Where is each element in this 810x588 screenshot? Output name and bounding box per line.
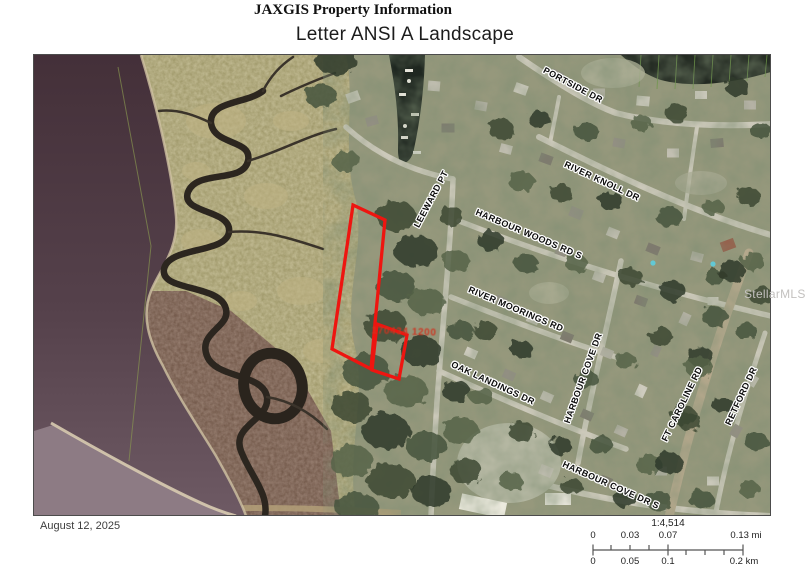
street-label-layer: PORTSIDE DRRIVER KNOLL DRLEEWARD PTHARBO… xyxy=(34,55,771,516)
scalebar-ticks xyxy=(588,543,764,557)
parcel-id-label: 170434 1200 xyxy=(371,325,436,338)
street-label-harbour-cove-dr-s: HARBOUR COVE DR S xyxy=(561,459,661,511)
page-subtitle: Letter ANSI A Landscape xyxy=(0,24,810,46)
street-label-harbour-cove-dr: HARBOUR COVE DR xyxy=(562,331,604,424)
scale-km-0: 0 xyxy=(590,556,595,567)
map-date: August 12, 2025 xyxy=(40,520,120,532)
scale-km-3: 0.2 km xyxy=(730,556,759,567)
street-label-oak-landings-dr: OAK LANDINGS DR xyxy=(450,359,537,407)
street-label-portside-dr: PORTSIDE DR xyxy=(542,65,605,105)
street-label-harbour-woods-rd-s: HARBOUR WOODS RD S xyxy=(474,207,583,261)
scale-km-1: 0.05 xyxy=(621,556,640,567)
street-label-river-knoll-dr: RIVER KNOLL DR xyxy=(563,159,641,203)
watermark: StellarMLS xyxy=(744,287,806,301)
scale-mi-2: 0.07 xyxy=(659,530,678,541)
page-title: JAXGIS Property Information xyxy=(0,2,706,19)
scale-km-2: 0.1 xyxy=(661,556,674,567)
street-label-ft-caroline-rd: FT CAROLINE RD xyxy=(660,365,705,443)
map-canvas: PORTSIDE DRRIVER KNOLL DRLEEWARD PTHARBO… xyxy=(33,54,771,516)
page: { "page": { "title": "JAXGIS Property In… xyxy=(0,0,810,588)
scale-mi-3: 0.13 mi xyxy=(730,530,761,541)
scalebar: 1:4,514 0 0.03 0.07 0.13 mi 0 0.05 0.1 0… xyxy=(588,518,764,570)
scale-mi-0: 0 xyxy=(590,530,595,541)
street-label-leeward-pt: LEEWARD PT xyxy=(412,169,450,229)
scale-ratio: 1:4,514 xyxy=(588,518,748,529)
street-label-river-moorings-rd: RIVER MOORINGS RD xyxy=(467,284,565,333)
scale-mi-1: 0.03 xyxy=(621,530,640,541)
street-label-retford-dr: RETFORD DR xyxy=(723,365,759,426)
